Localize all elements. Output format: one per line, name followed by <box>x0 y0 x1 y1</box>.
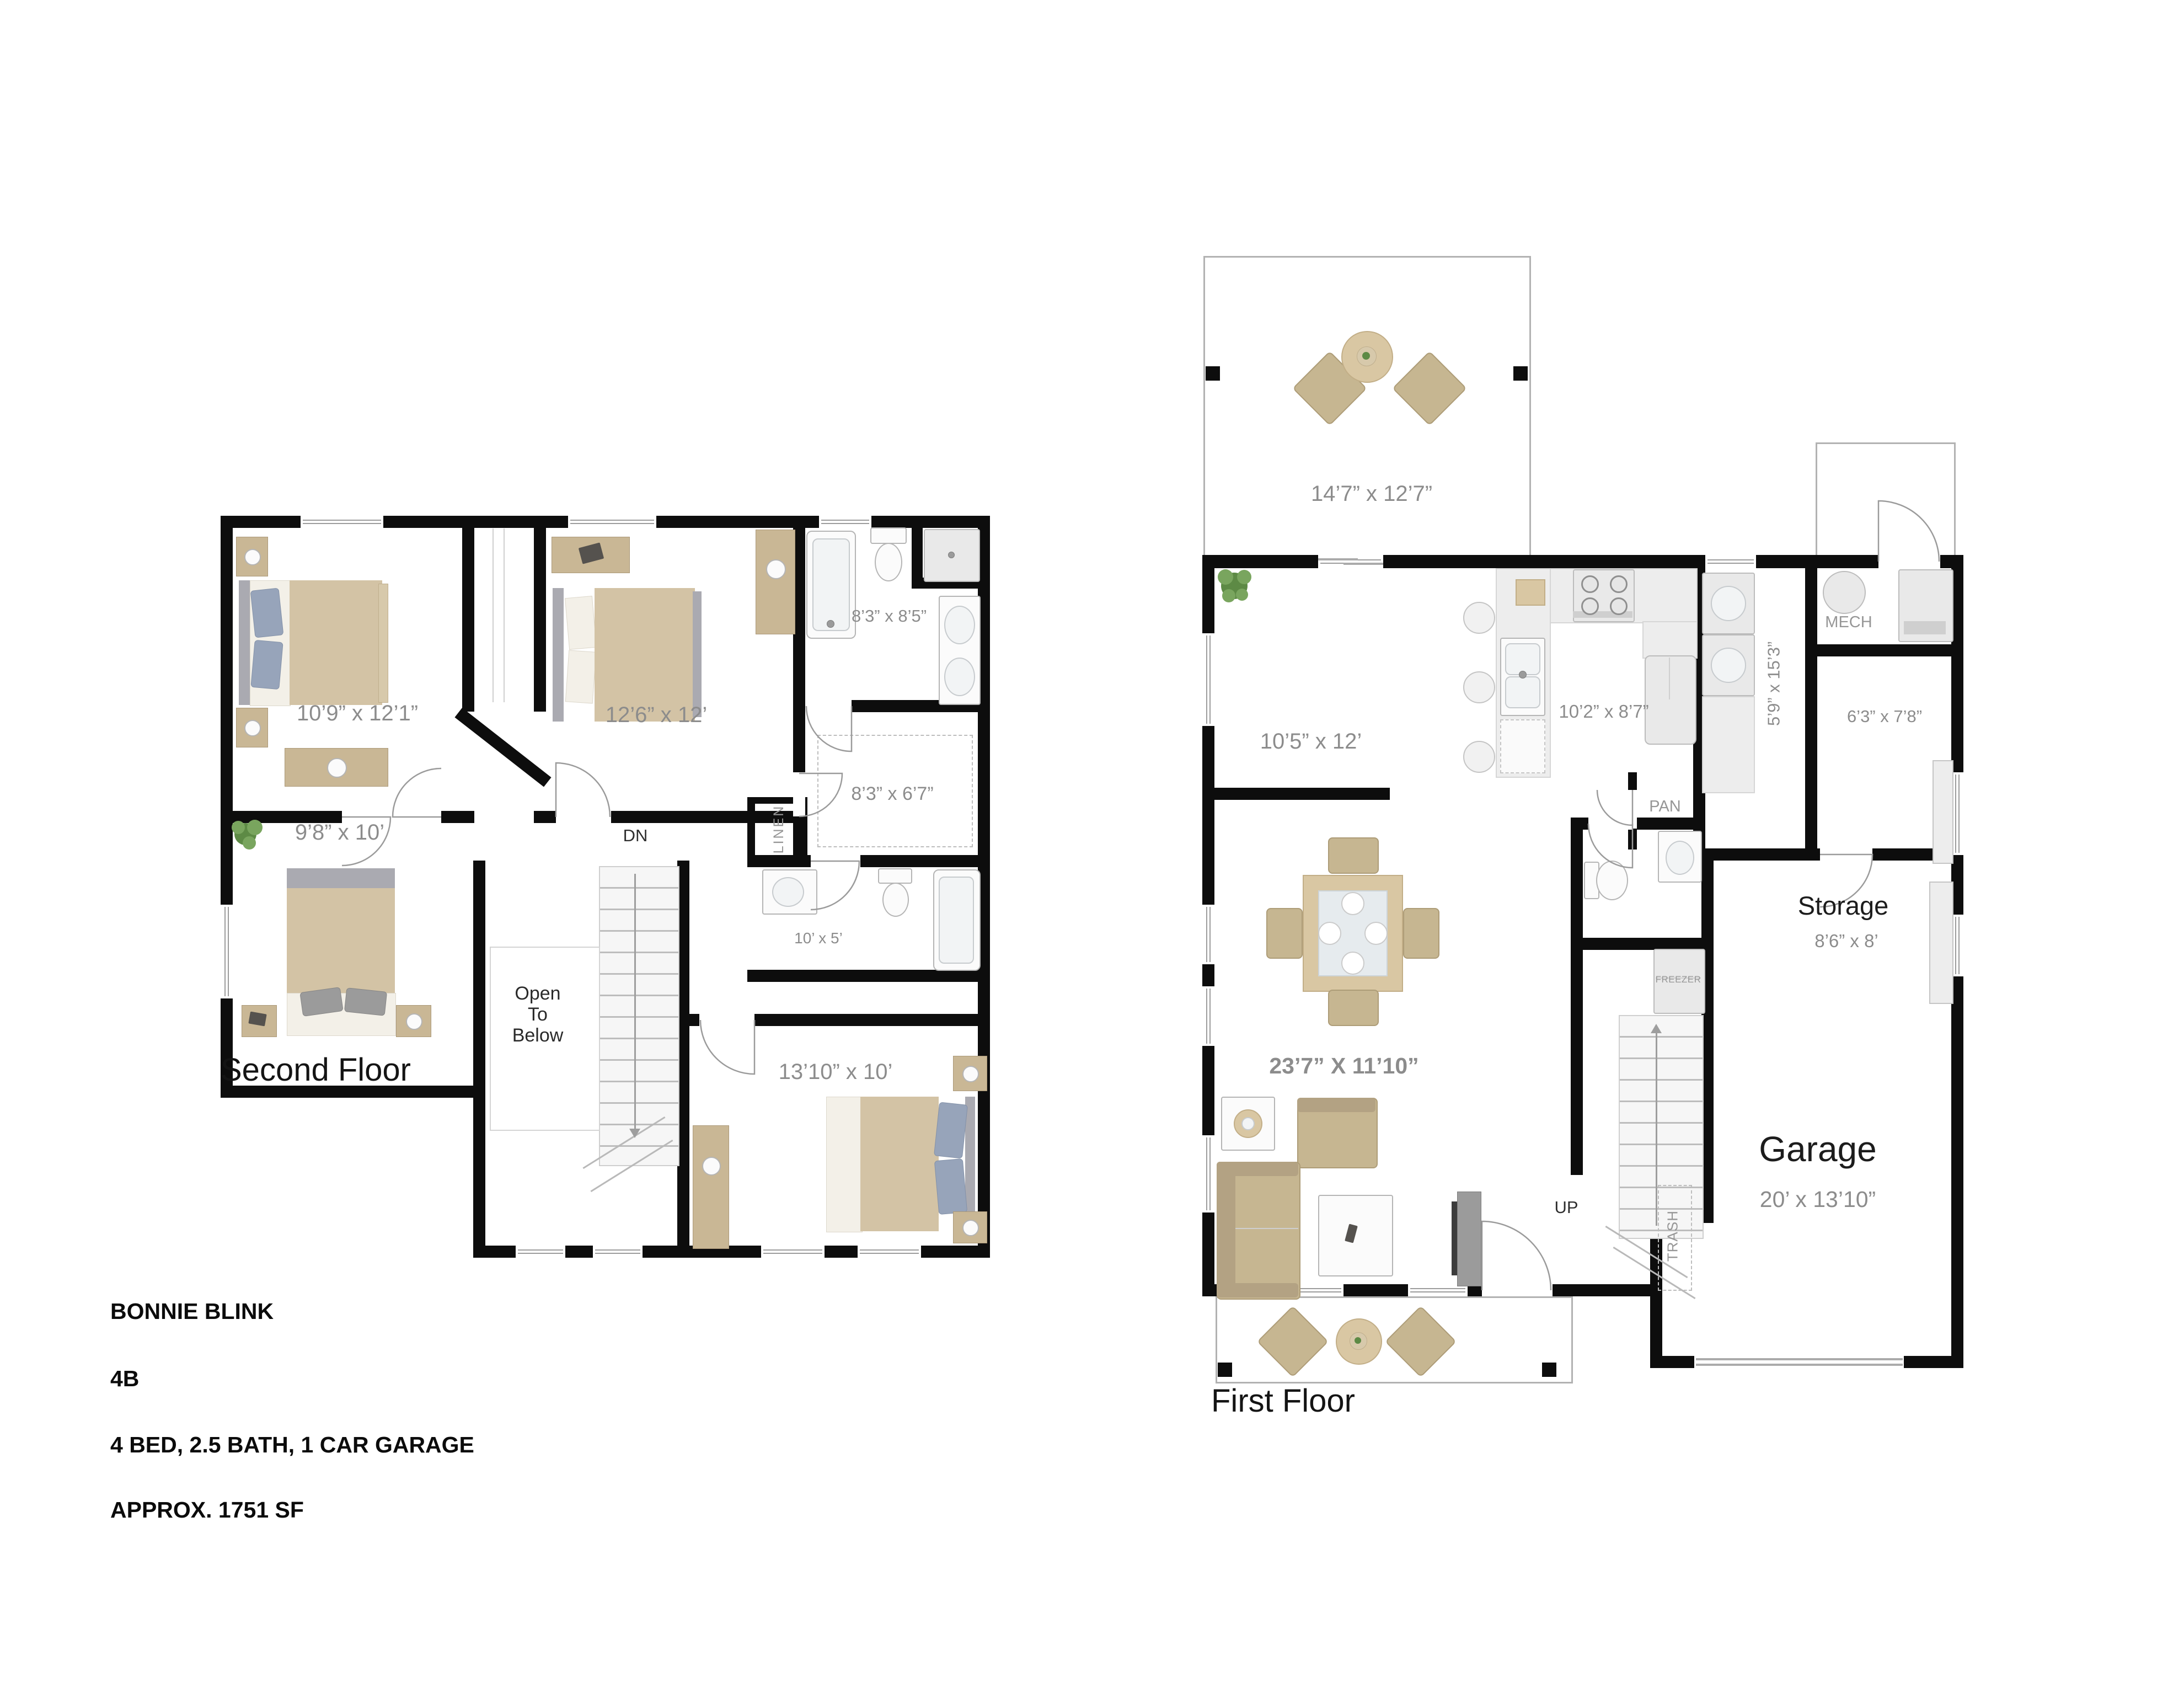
garage-dim-label: 20’ x 13’10” <box>1721 1187 1914 1212</box>
laundry-dim-label: 5’9” x 15’3” <box>1765 609 1784 758</box>
stove-burner <box>1610 575 1628 593</box>
bar-stool <box>1463 602 1495 634</box>
master-bath-dim-label: 8’3” x 8’5” <box>834 607 944 626</box>
garage-name-label: Garage <box>1707 1130 1928 1169</box>
plant-icon <box>232 821 245 834</box>
bed-blanket <box>860 1097 939 1231</box>
window-glass <box>1206 635 1211 724</box>
plan-code: 4B <box>110 1366 139 1392</box>
sink-icon <box>944 606 975 644</box>
first-floor-title: First Floor <box>1211 1383 1487 1419</box>
dining-chair <box>1266 908 1303 959</box>
bed-footboard <box>378 584 388 703</box>
window <box>1202 905 1214 964</box>
pillow <box>250 640 283 690</box>
window <box>516 1246 565 1258</box>
porch-post <box>1542 1363 1556 1377</box>
dining-chair <box>1403 908 1439 959</box>
trash-label: TRASH <box>1664 1184 1680 1289</box>
door-swing-icon <box>754 729 844 818</box>
patio-post <box>1513 366 1528 381</box>
porch-post <box>1218 1363 1232 1377</box>
fridge-icon <box>1645 655 1696 745</box>
lamp-icon <box>962 1066 979 1082</box>
fridge-door-split <box>1669 658 1670 699</box>
wall <box>1571 818 1583 1175</box>
garage-door-line <box>1696 1358 1903 1360</box>
window-glass <box>1707 559 1754 564</box>
toilet-tank <box>878 868 912 884</box>
slider-door-line <box>1343 563 1383 565</box>
wall <box>747 797 755 867</box>
bed-blanket <box>287 888 395 994</box>
pillow <box>344 987 387 1016</box>
window <box>1318 555 1383 568</box>
sofa-cushion-line <box>1235 1228 1298 1229</box>
pantry-label: PAN <box>1635 798 1695 815</box>
bed-sheet <box>826 1097 863 1232</box>
window-glass <box>518 1249 563 1254</box>
patio-post <box>1206 366 1220 381</box>
window-glass <box>1206 989 1211 1044</box>
kitchen-dim-label: 10’2” x 8’7” <box>1532 702 1676 722</box>
stairs-down-label: DN <box>608 826 663 846</box>
plan-area: APPROX. 1751 SF <box>110 1497 304 1523</box>
window-glass <box>1206 1137 1211 1210</box>
window <box>593 1246 643 1258</box>
door-swing-icon <box>699 964 810 1076</box>
bathtub-basin <box>939 877 974 964</box>
closet-door-track <box>504 528 505 702</box>
bedroom1-dim-label: 10’9” x 12’1” <box>275 701 440 726</box>
door-swing-icon <box>391 767 491 867</box>
staircase-down <box>599 866 679 1166</box>
hall-bath-dim-label: 10’ x 5’ <box>774 930 863 947</box>
lamp-icon <box>406 1013 422 1030</box>
window <box>1202 633 1214 726</box>
laundry-counter <box>1702 696 1755 793</box>
closet-door-track <box>493 528 494 702</box>
window <box>858 1246 921 1258</box>
toilet-bowl <box>882 883 909 917</box>
shower-drain <box>948 552 955 558</box>
bedroom3-dim-label: 9’8” x 10’ <box>257 820 422 845</box>
bedroom2-dim-label: 12’6” x 12’ <box>574 703 739 728</box>
pillow <box>250 588 284 638</box>
lamp-icon <box>244 549 261 565</box>
plate-icon <box>1364 922 1388 945</box>
wall <box>221 516 233 1098</box>
wall <box>473 1246 702 1258</box>
stair-arrowhead <box>1651 1024 1662 1033</box>
stair-arrow-line <box>634 874 636 1131</box>
plan-specs: 4 BED, 2.5 BATH, 1 CAR GARAGE <box>110 1432 474 1458</box>
mirror-icon <box>702 1157 721 1176</box>
wall <box>1817 644 1951 656</box>
sofa-arm <box>1217 1283 1298 1297</box>
wall <box>462 516 474 712</box>
lamp-icon <box>962 1220 979 1236</box>
window <box>1705 555 1756 568</box>
window-glass <box>763 1249 822 1254</box>
plant-icon <box>243 836 256 850</box>
pillow <box>934 1102 968 1159</box>
patio-dim-label: 14’7” x 12’7” <box>1289 482 1454 506</box>
tub-drain <box>827 620 834 628</box>
stove-burner <box>1610 597 1628 615</box>
stairs-up-label: UP <box>1544 1198 1588 1217</box>
window <box>301 516 383 528</box>
coffee-table <box>1318 1195 1393 1276</box>
wall <box>534 516 546 712</box>
window-glass <box>1206 907 1211 962</box>
plant-icon <box>1236 589 1248 601</box>
door-swing-icon <box>1411 1220 1553 1361</box>
kitchen-counter <box>1642 621 1698 659</box>
floor-plan-sheet: 10’9” x 12’1” 12’6” x 12’ 8’3” x 8’5” 8’… <box>0 0 2184 1688</box>
window <box>761 1246 825 1258</box>
washer-door <box>1711 586 1746 621</box>
mech-room-label: MECH <box>1805 613 1893 631</box>
dresser <box>756 530 795 634</box>
window <box>221 905 233 998</box>
window-glass <box>595 1249 640 1254</box>
sink-icon <box>944 658 975 696</box>
cutting-board-icon <box>1516 579 1545 606</box>
open-to-below-label: Open To Below <box>505 983 571 1046</box>
freezer-label: FREEZER <box>1653 974 1703 985</box>
toilet-tank <box>870 527 907 544</box>
linen-closet-label: LINEN <box>771 796 786 862</box>
bed-blanket <box>290 580 382 705</box>
stair-arrow-line <box>1656 1033 1657 1226</box>
stove-burner <box>1581 575 1599 593</box>
plant-icon <box>1222 589 1235 602</box>
window-glass <box>303 520 381 524</box>
window-glass <box>570 520 654 524</box>
bed-blanket <box>595 588 695 722</box>
pillow <box>934 1158 967 1215</box>
faucet-icon <box>1519 671 1527 679</box>
patio-slab <box>1203 256 1531 560</box>
dining-chair <box>1328 837 1379 874</box>
bar-stool <box>1463 671 1495 703</box>
window <box>568 516 656 528</box>
lamp-icon <box>244 720 261 736</box>
storage-dim-label: 8’6” x 8’ <box>1780 931 1913 952</box>
door-swing-icon <box>1816 499 1941 624</box>
window-glass <box>860 1249 919 1254</box>
plate-icon <box>1341 952 1364 975</box>
window <box>819 516 871 528</box>
plant-icon <box>1218 569 1233 585</box>
second-floor-title: Second Floor <box>221 1053 496 1088</box>
bed-footboard <box>693 591 702 717</box>
door-swing-icon <box>1596 753 1669 827</box>
entry-dim-label: 6’3” x 7’8” <box>1818 707 1951 727</box>
door-swing-icon <box>500 761 612 873</box>
garage-door-line <box>1696 1364 1903 1366</box>
plant-icon <box>1362 352 1370 360</box>
great-room-dim-label: 23’7” X 11’10” <box>1248 1054 1441 1079</box>
window-glass <box>1955 774 1960 853</box>
dining-chair <box>1328 990 1379 1026</box>
bed-headboard <box>239 580 250 705</box>
pillow <box>565 596 597 650</box>
storage-name-label: Storage <box>1760 891 1926 921</box>
window <box>1202 1135 1214 1212</box>
stair-arrowhead <box>629 1129 640 1138</box>
walkin-closet-dim-label: 8’3” x 6’7” <box>823 783 961 804</box>
stove-burner <box>1581 597 1599 615</box>
dresser <box>693 1125 729 1249</box>
bed-headrail <box>287 868 395 888</box>
wall <box>1571 938 1701 950</box>
lamp-icon <box>766 559 786 579</box>
project-name: BONNIE BLINK <box>110 1299 274 1324</box>
plant-icon <box>1237 570 1251 584</box>
storage-shelf <box>1929 882 1953 1004</box>
wall <box>1214 788 1390 800</box>
plate-icon <box>1341 892 1364 915</box>
sofa-back <box>1217 1162 1235 1297</box>
door-swing-icon <box>292 767 392 867</box>
window <box>1202 986 1214 1046</box>
wall <box>1553 1284 1662 1296</box>
armchair-back <box>1297 1098 1375 1112</box>
window-glass <box>1955 917 1960 974</box>
pillow <box>565 650 596 703</box>
window-glass <box>224 907 229 996</box>
window-glass <box>821 520 869 524</box>
plant-icon <box>1355 1337 1361 1344</box>
dryer-door <box>1711 648 1746 683</box>
bedroom4-dim-label: 13’10” x 10’ <box>753 1060 918 1085</box>
plate-icon <box>1318 922 1341 945</box>
toilet-bowl <box>875 543 902 581</box>
table-lamp-top <box>1241 1117 1255 1130</box>
bed-headboard <box>553 588 564 722</box>
slider-door-line <box>1318 558 1358 560</box>
flex-room-dim-label: 10’5” x 12’ <box>1228 729 1394 754</box>
bar-stool <box>1463 741 1495 773</box>
dishwasher-icon <box>1500 719 1545 773</box>
entry-door-slab <box>1933 760 1953 864</box>
sofa-arm <box>1217 1162 1298 1176</box>
